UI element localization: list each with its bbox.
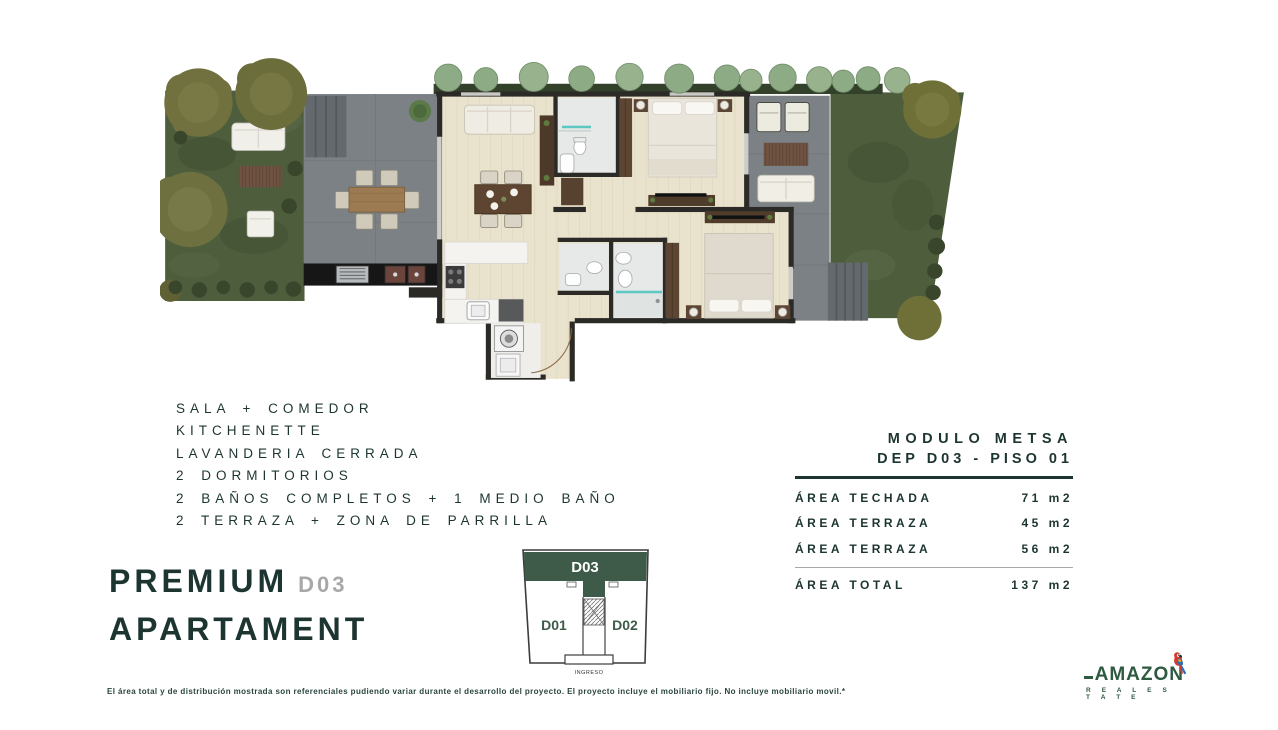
feature-item: LAVANDERIA CERRADA bbox=[176, 443, 620, 465]
spec-value: 137 m2 bbox=[1011, 578, 1073, 592]
parrot-icon bbox=[1170, 651, 1188, 675]
spec-label: ÁREA TOTAL bbox=[795, 578, 906, 592]
title-unit-code: D03 bbox=[298, 572, 347, 597]
brochure-page: SALA + COMEDOR KITCHENETTE LAVANDERIA CE… bbox=[0, 0, 1278, 730]
feature-item: SALA + COMEDOR bbox=[176, 398, 620, 420]
page-title: PREMIUMD03 APARTAMENT bbox=[109, 559, 368, 652]
spec-label: ÁREA TECHADA bbox=[795, 491, 933, 505]
module-name: MODULO METSA bbox=[795, 431, 1073, 448]
feature-item: KITCHENETTE bbox=[176, 420, 620, 442]
brand-logo: AMAZON R E A L E S T A T E bbox=[1084, 664, 1184, 701]
spec-table: MODULO METSA DEP D03 - PISO 01 ÁREA TECH… bbox=[795, 431, 1073, 592]
wood-deck bbox=[239, 166, 282, 187]
feature-item: 2 BAÑOS COMPLETOS + 1 MEDIO BAÑO bbox=[176, 488, 620, 510]
disclaimer-text: El área total y de distribución mostrada… bbox=[107, 687, 887, 696]
spec-row: ÁREA TERRAZA 56 m2 bbox=[795, 530, 1073, 556]
spec-value: 71 m2 bbox=[1021, 491, 1073, 505]
spec-value: 56 m2 bbox=[1021, 542, 1073, 556]
unit-floor: DEP D03 - PISO 01 bbox=[795, 451, 1073, 468]
lamp bbox=[689, 308, 698, 317]
outdoor-rug bbox=[764, 143, 808, 166]
feature-item: 2 DORMITORIOS bbox=[176, 465, 620, 487]
spec-label: ÁREA TERRAZA bbox=[795, 516, 931, 530]
keyplan-label-d03: D03 bbox=[571, 559, 599, 576]
title-apartament: APARTAMENT bbox=[109, 607, 368, 652]
spec-label: ÁREA TERRAZA bbox=[795, 542, 931, 556]
logo-tagline: R E A L E S T A T E bbox=[1086, 687, 1184, 701]
spec-total-row: ÁREA TOTAL 137 m2 bbox=[795, 568, 1073, 592]
lamp bbox=[720, 101, 729, 110]
armchair bbox=[785, 103, 809, 132]
toilet bbox=[618, 270, 632, 287]
spec-row: ÁREA TECHADA 71 m2 bbox=[795, 479, 1073, 505]
bath-sink bbox=[565, 274, 580, 286]
bath-sink bbox=[616, 252, 631, 264]
spec-value: 45 m2 bbox=[1021, 516, 1073, 530]
logo-dash bbox=[1084, 676, 1093, 679]
sofa bbox=[464, 105, 534, 134]
armchair bbox=[757, 103, 781, 132]
keyplan-label-d02: D02 bbox=[612, 617, 638, 633]
bath-sink bbox=[560, 154, 574, 173]
lamp bbox=[636, 101, 645, 110]
floor-plan bbox=[160, 40, 1105, 432]
toilet bbox=[587, 262, 602, 274]
counter-cabinet bbox=[499, 299, 524, 321]
keyplan: D03 D01 D02 INGRESO bbox=[519, 545, 659, 678]
spec-row: ÁREA TERRAZA 45 m2 bbox=[795, 505, 1073, 530]
bbq-counter bbox=[304, 263, 451, 297]
keyplan-label-ingreso: INGRESO bbox=[575, 670, 604, 676]
lamp bbox=[778, 308, 787, 317]
keyplan-label-d01: D01 bbox=[541, 617, 567, 633]
outdoor-table bbox=[349, 187, 405, 212]
stove bbox=[446, 266, 465, 288]
feature-item: 2 TERRAZA + ZONA DE PARRILLA bbox=[176, 510, 620, 532]
title-premium: PREMIUM bbox=[109, 563, 288, 599]
terrace-left bbox=[304, 94, 443, 263]
garden-chair bbox=[247, 211, 274, 237]
keyplan-porch bbox=[565, 655, 613, 664]
feature-list: SALA + COMEDOR KITCHENETTE LAVANDERIA CE… bbox=[176, 398, 620, 532]
hall-closet bbox=[561, 178, 583, 205]
